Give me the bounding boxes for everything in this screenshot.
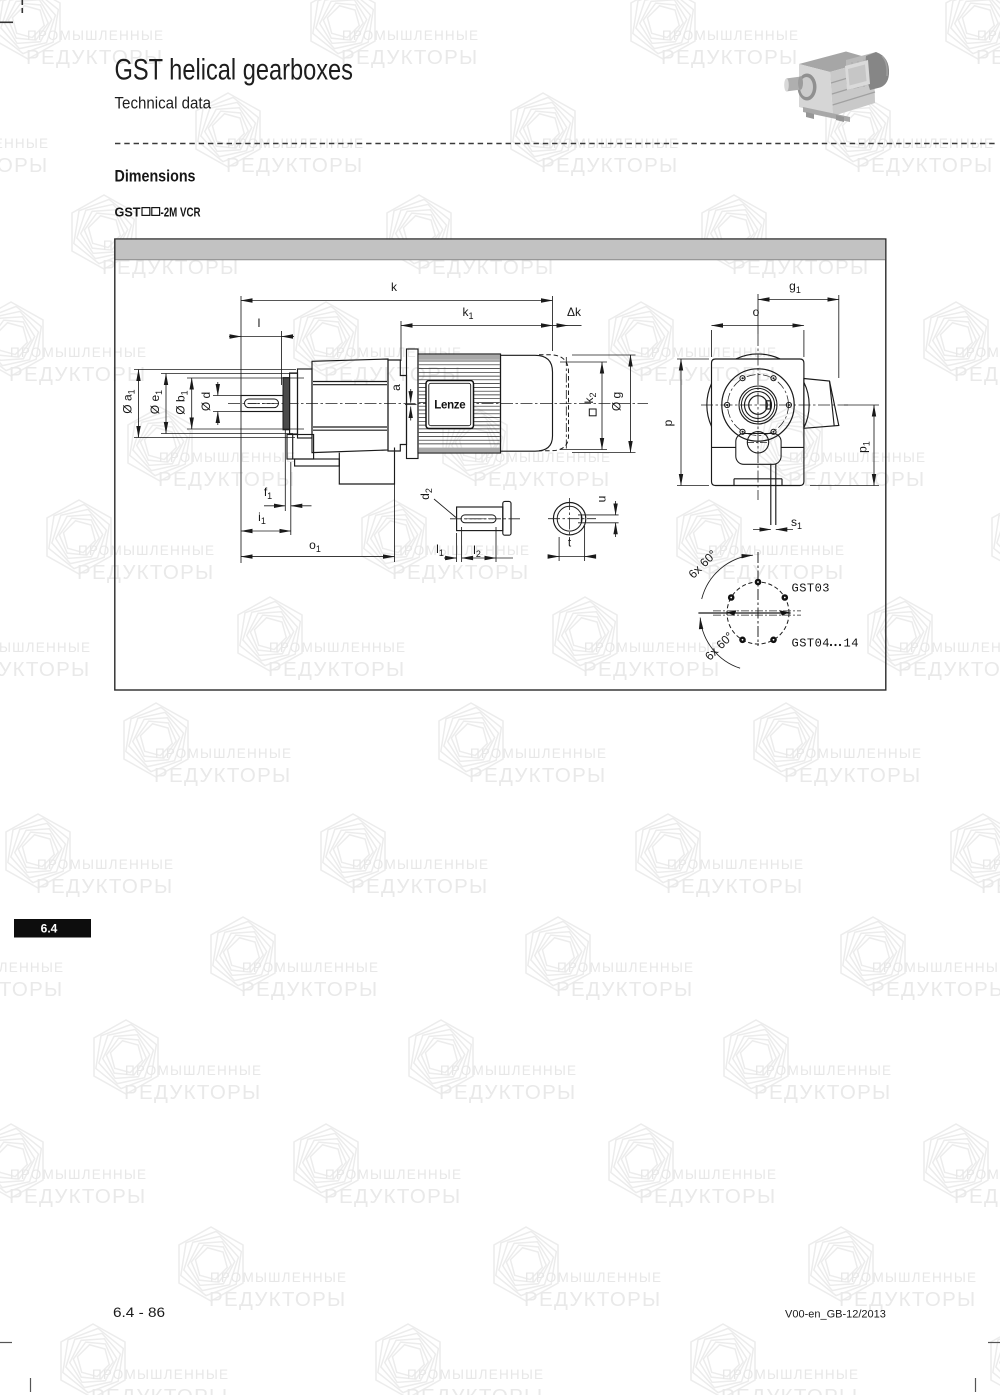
svg-text:k2: k2 bbox=[582, 392, 598, 403]
svg-text:Ø a1: Ø a1 bbox=[121, 389, 137, 413]
svg-text:GST03: GST03 bbox=[792, 582, 831, 596]
svg-text:Ø g: Ø g bbox=[610, 392, 624, 411]
svg-text:6.4 - 86: 6.4 - 86 bbox=[113, 1305, 165, 1320]
svg-text:V00-en_GB-12/2013: V00-en_GB-12/2013 bbox=[785, 1309, 886, 1321]
svg-text:GST04: GST04 bbox=[792, 637, 831, 651]
svg-text:6.4: 6.4 bbox=[41, 922, 58, 936]
svg-text:p1: p1 bbox=[856, 441, 872, 453]
svg-text:p: p bbox=[661, 419, 675, 426]
svg-text:Dimensions: Dimensions bbox=[115, 167, 196, 186]
svg-text:a: a bbox=[389, 384, 403, 391]
svg-text:u: u bbox=[595, 496, 609, 503]
svg-text:Ø e1: Ø e1 bbox=[148, 390, 164, 414]
svg-text:14: 14 bbox=[844, 637, 859, 651]
svg-text:-2M VCR: -2M VCR bbox=[161, 206, 201, 220]
svg-text:t: t bbox=[568, 536, 572, 550]
svg-text:Ø d: Ø d bbox=[199, 392, 213, 411]
svg-text:o1: o1 bbox=[309, 538, 321, 554]
svg-text:GST helical gearboxes: GST helical gearboxes bbox=[115, 54, 354, 87]
svg-text:k: k bbox=[391, 280, 398, 294]
svg-text:Lenze: Lenze bbox=[434, 400, 465, 412]
svg-text:g1: g1 bbox=[789, 279, 801, 295]
svg-text:o: o bbox=[753, 305, 760, 319]
svg-text:l: l bbox=[258, 316, 261, 330]
svg-text:Δk: Δk bbox=[567, 305, 582, 319]
svg-text:Ø b1: Ø b1 bbox=[174, 390, 190, 414]
svg-text:k1: k1 bbox=[462, 305, 473, 321]
svg-text:d2: d2 bbox=[418, 488, 434, 500]
svg-text:i1: i1 bbox=[258, 510, 266, 526]
svg-text:s1: s1 bbox=[791, 515, 802, 531]
svg-text:GST: GST bbox=[115, 206, 141, 220]
svg-text:Technical data: Technical data bbox=[115, 95, 212, 113]
